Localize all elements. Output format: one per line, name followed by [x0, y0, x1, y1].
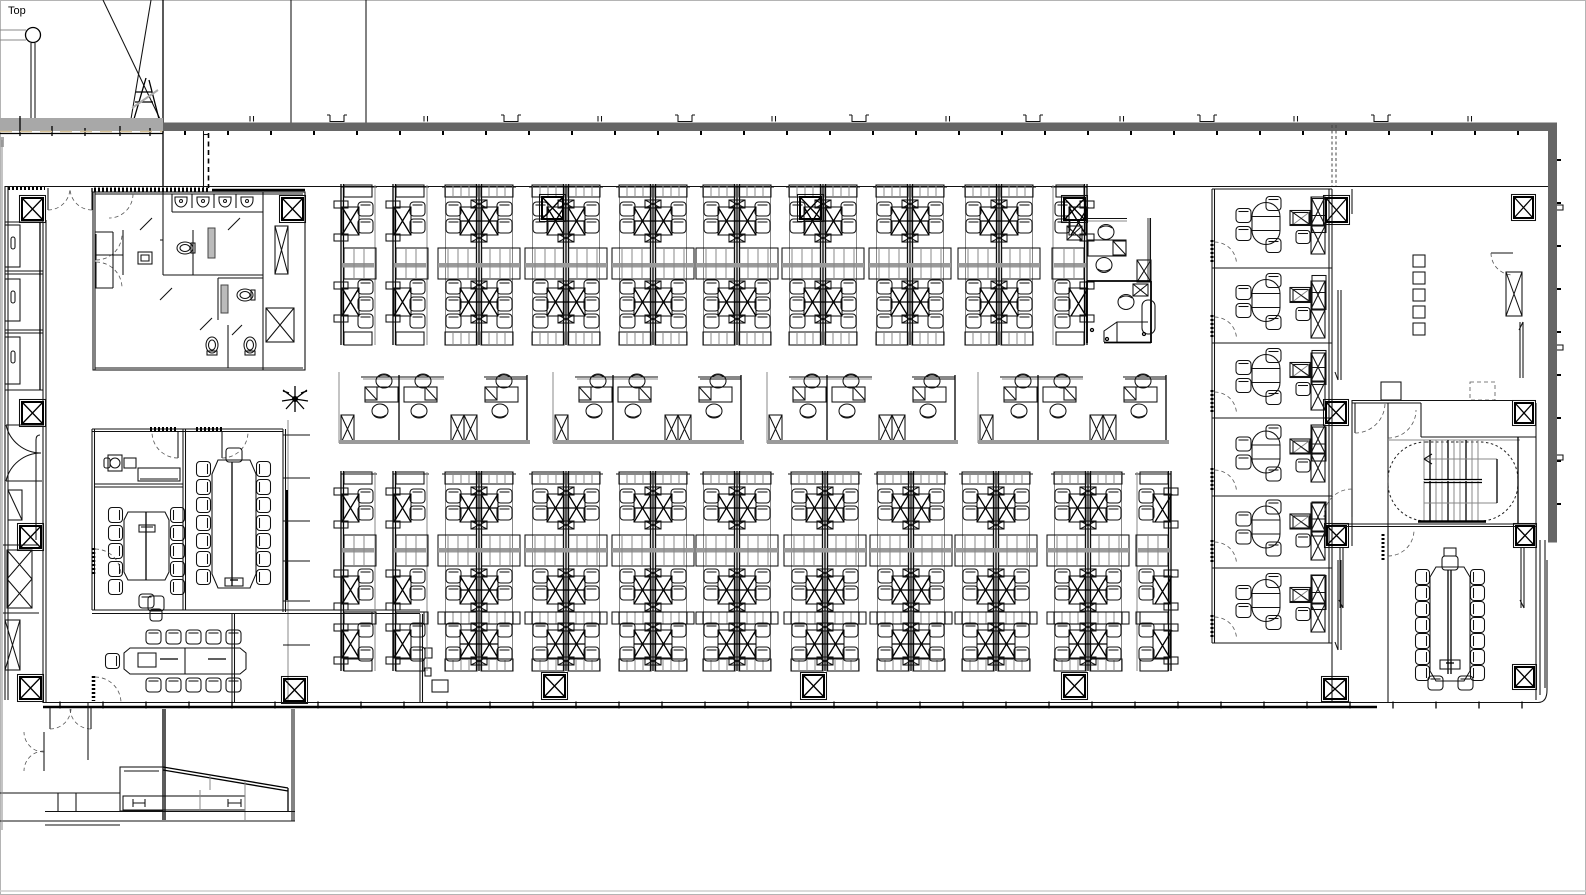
svg-text:Top: Top — [8, 5, 26, 17]
